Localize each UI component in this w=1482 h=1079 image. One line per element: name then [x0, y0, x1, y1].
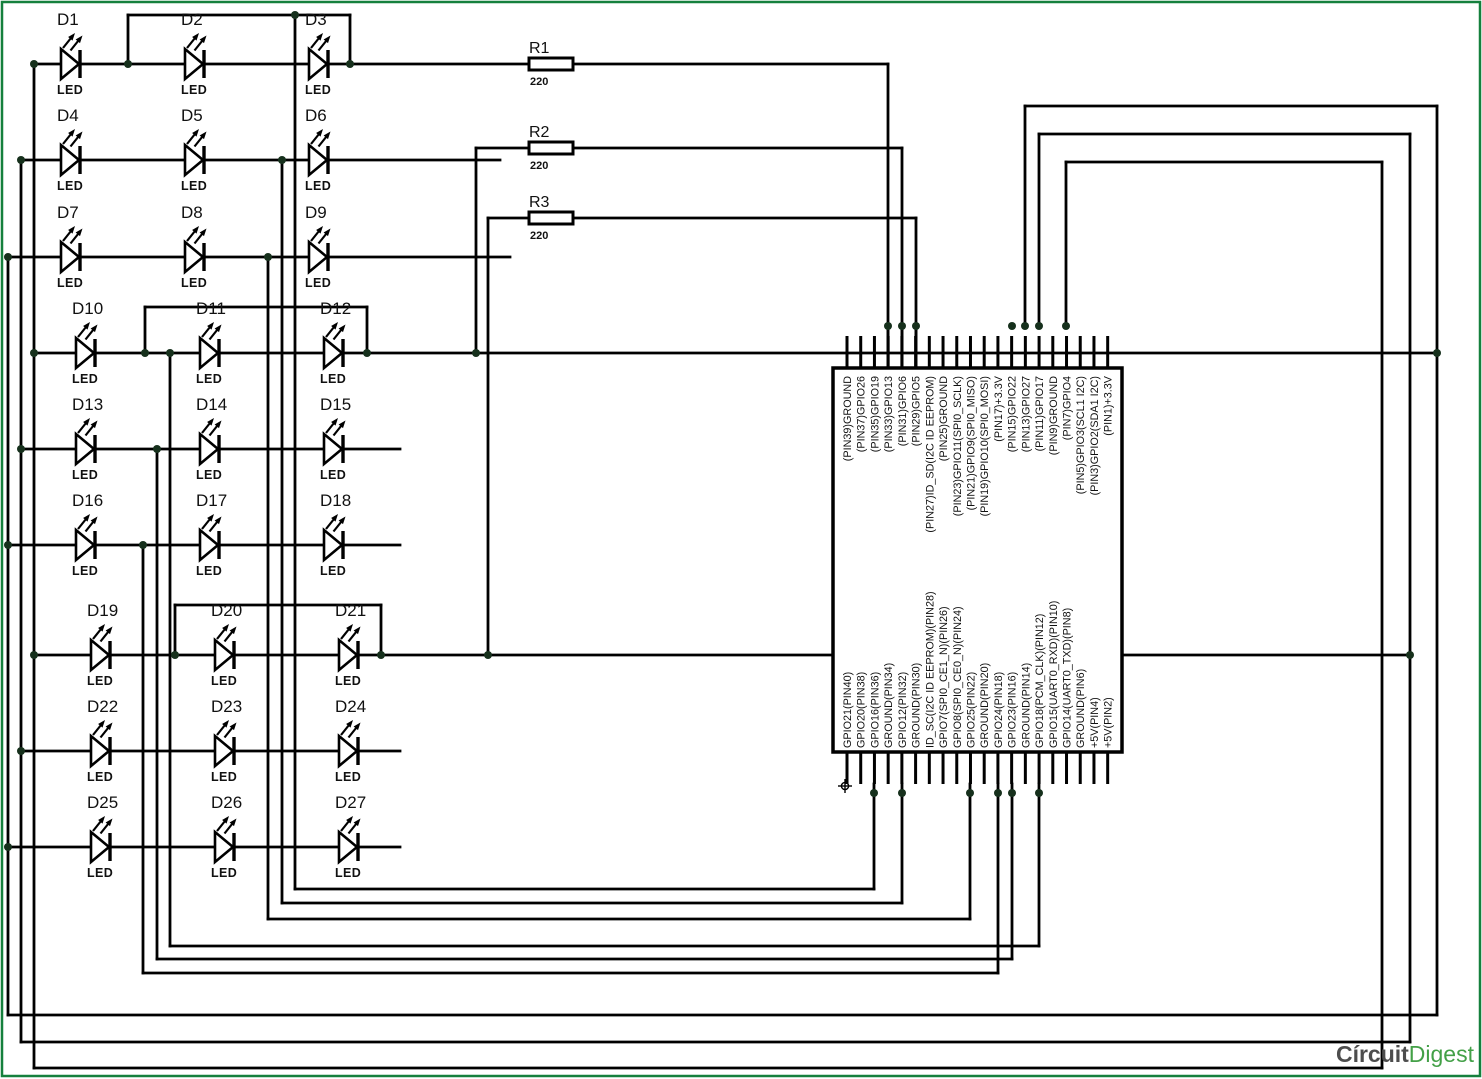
led-arrowhead-icon [222, 624, 236, 634]
pi-top-pin-label: (PIN23)GPIO11(SPI0_SCLK) [952, 376, 964, 516]
led-triangle-icon [76, 338, 94, 368]
led-designator: D20 [211, 601, 242, 620]
led-triangle-icon [324, 338, 342, 368]
junction-dot [363, 349, 371, 357]
junction-dots [4, 11, 1441, 851]
led-arrowhead-icon [68, 33, 82, 43]
led-triangle-icon [215, 832, 233, 862]
led-arrowhead-icon [192, 129, 206, 139]
led-type-label: LED [87, 674, 113, 688]
junction-dot [1008, 789, 1016, 797]
led-type-label: LED [196, 372, 222, 386]
led-triangle-icon [309, 49, 327, 79]
led-d7: D7LED [57, 203, 83, 290]
led-designator: D23 [211, 697, 242, 716]
junction-dot [1035, 322, 1043, 330]
junction-dot [141, 349, 149, 357]
pi-bottom-pin-label: GPIO24(PIN18) [993, 672, 1005, 748]
resistor-r3: R3220 [529, 194, 573, 242]
led-designator: D17 [196, 491, 227, 510]
led-type-label: LED [305, 83, 331, 97]
pi-bottom-pin-label: ID_SC(I2C ID EEPROM)(PIN28) [924, 591, 936, 748]
led-arrowhead-icon [316, 226, 330, 236]
junction-dot [4, 253, 12, 261]
led-type-label: LED [211, 866, 237, 880]
led-triangle-icon [91, 736, 109, 766]
led-triangle-icon [324, 434, 342, 464]
pi-top-pin-label: (PIN5)GPIO3(SCL1 I2C) [1075, 376, 1087, 494]
junction-dot [472, 349, 480, 357]
led-d26: D26LED [211, 793, 242, 880]
led-designator: D2 [181, 10, 203, 29]
led-array: D1LEDD2LEDD3LEDD4LEDD5LEDD6LEDD7LEDD8LED… [57, 10, 366, 880]
junction-dot [1406, 651, 1414, 659]
led-d9: D9LED [305, 203, 331, 290]
pi-bottom-pin-label: GROUND(PIN14) [1020, 663, 1032, 748]
led-arrowhead-icon [316, 129, 330, 139]
junction-dot [484, 651, 492, 659]
led-d2: D2LED [181, 10, 207, 97]
led-designator: D5 [181, 106, 203, 125]
pi-top-pin-label: (PIN33)GPIO13 [883, 376, 895, 452]
pi-top-pin-label: (PIN15)GPIO22 [1007, 376, 1019, 452]
junction-dot [994, 789, 1002, 797]
pi-top-pin-label: (PIN21)GPIO9(SPI0_MISO) [965, 376, 977, 510]
logo-circuit-text: Círcuit [1336, 1041, 1409, 1067]
pi-top-pin-label: (PIN13)GPIO27 [1020, 376, 1032, 452]
led-triangle-icon [76, 530, 94, 560]
pi-bottom-pin-label: GROUND(PIN34) [883, 663, 895, 748]
led-type-label: LED [320, 468, 346, 482]
led-arrowhead-icon [207, 322, 221, 332]
led-d10: D10LED [72, 299, 103, 386]
led-type-label: LED [211, 674, 237, 688]
led-type-label: LED [320, 564, 346, 578]
led-d11: D11LED [196, 299, 226, 386]
led-arrowhead-icon [222, 720, 236, 730]
junction-dot [291, 11, 299, 19]
resistor-name: R3 [529, 194, 550, 211]
pi-bottom-pin-label: +5V(PIN2) [1103, 697, 1115, 748]
led-arrowhead-icon [346, 816, 360, 826]
resistor-r2: R2220 [529, 124, 573, 172]
led-triangle-icon [185, 49, 203, 79]
led-triangle-icon [200, 434, 218, 464]
pi-top-pin-label: (PIN1)+3.3V [1103, 375, 1115, 436]
junction-dot [278, 156, 286, 164]
pi-top-pin-label: (PIN7)GPIO4 [1062, 376, 1074, 440]
led-designator: D26 [211, 793, 242, 812]
led-d3: D3LED [305, 10, 331, 97]
led-type-label: LED [72, 564, 98, 578]
led-d1: D1LED [57, 10, 83, 97]
led-designator: D22 [87, 697, 118, 716]
led-arrowhead-icon [83, 418, 97, 428]
junction-dot [377, 651, 385, 659]
led-d20: D20LED [211, 601, 242, 688]
resistor-body [529, 58, 573, 70]
junction-dot [17, 747, 25, 755]
pi-top-pin-label: (PIN39)GROUND [842, 376, 854, 461]
led-arrowhead-icon [192, 33, 206, 43]
pi-bottom-pin-label: GPIO7(SPI0_CE1_N)(PIN26) [938, 606, 950, 748]
led-d8: D8LED [181, 203, 207, 290]
resistor-name: R1 [529, 40, 550, 57]
led-type-label: LED [305, 276, 331, 290]
led-designator: D13 [72, 395, 103, 414]
led-type-label: LED [211, 770, 237, 784]
led-type-label: LED [335, 674, 361, 688]
led-type-label: LED [196, 564, 222, 578]
led-type-label: LED [72, 468, 98, 482]
led-triangle-icon [200, 338, 218, 368]
junction-dot [139, 541, 147, 549]
pi-top-pin-label: (PIN11)GPIO17 [1034, 376, 1046, 451]
led-arrowhead-icon [98, 816, 112, 826]
led-type-label: LED [320, 372, 346, 386]
junction-dot [30, 349, 38, 357]
pi-bottom-pin-label: GPIO25(PIN22) [965, 672, 977, 748]
resistor-value: 220 [530, 76, 548, 88]
led-d5: D5LED [181, 106, 207, 193]
led-type-label: LED [57, 276, 83, 290]
led-arrowhead-icon [192, 226, 206, 236]
pi-top-pin-label: (PIN29)GPIO5 [911, 376, 923, 446]
led-arrowhead-icon [207, 418, 221, 428]
junction-dot [1062, 322, 1070, 330]
pi-bottom-pin-label: GPIO23(PIN16) [1007, 672, 1019, 748]
pi-bottom-pin-label: GPIO8(SPI0_CE0_N)(PIN24) [952, 606, 964, 748]
led-type-label: LED [335, 770, 361, 784]
circuitdigest-logo: CírcuitDigest [1336, 1041, 1475, 1067]
led-designator: D10 [72, 299, 103, 318]
junction-dot [1433, 349, 1441, 357]
led-designator: D12 [320, 299, 351, 318]
junction-dot [1008, 322, 1016, 330]
led-designator: D9 [305, 203, 327, 222]
junction-dot [1035, 789, 1043, 797]
led-designator: D4 [57, 106, 79, 125]
led-type-label: LED [181, 179, 207, 193]
led-arrowhead-icon [346, 624, 360, 634]
led-type-label: LED [335, 866, 361, 880]
junction-dot [884, 322, 892, 330]
led-designator: D15 [320, 395, 351, 414]
junction-dot [870, 789, 878, 797]
led-designator: D24 [335, 697, 366, 716]
circuit-schematic-page: D1LEDD2LEDD3LEDD4LEDD5LEDD6LEDD7LEDD8LED… [0, 0, 1482, 1079]
junction-dot [966, 789, 974, 797]
led-arrowhead-icon [346, 720, 360, 730]
resistor-body [529, 212, 573, 224]
junction-dot [4, 541, 12, 549]
junction-dot [264, 253, 272, 261]
junction-dot [17, 445, 25, 453]
pi-bottom-pin-label: GPIO15(UART0_RXD)(PIN10) [1048, 601, 1060, 748]
led-arrowhead-icon [222, 816, 236, 826]
led-triangle-icon [309, 145, 327, 175]
led-arrowhead-icon [98, 720, 112, 730]
led-triangle-icon [76, 434, 94, 464]
led-type-label: LED [87, 770, 113, 784]
pi-bottom-pin-label: GPIO16(PIN36) [869, 672, 881, 748]
junction-dot [17, 156, 25, 164]
led-designator: D18 [320, 491, 351, 510]
pi-bottom-pin-label: GPIO12(PIN32) [897, 672, 909, 748]
junction-dot [124, 60, 132, 68]
pi-bottom-pin-label: GPIO20(PIN38) [856, 672, 868, 748]
led-designator: D21 [335, 601, 366, 620]
led-designator: D1 [57, 10, 79, 29]
led-triangle-icon [309, 242, 327, 272]
led-designator: D14 [196, 395, 227, 414]
junction-dot [898, 322, 906, 330]
led-d25: D25LED [87, 793, 118, 880]
logo-digest-text: Digest [1409, 1041, 1475, 1067]
led-d16: D16LED [72, 491, 103, 578]
led-arrowhead-icon [83, 514, 97, 524]
crosshair-icon [838, 779, 852, 793]
led-triangle-icon [185, 145, 203, 175]
pi-top-pin-label: (PIN19)GPIO10(SPI0_MOSI) [979, 376, 991, 516]
led-d4: D4LED [57, 106, 83, 193]
circuit-schematic: D1LEDD2LEDD3LEDD4LEDD5LEDD6LEDD7LEDD8LED… [0, 0, 1482, 1079]
led-arrowhead-icon [98, 624, 112, 634]
led-arrowhead-icon [331, 514, 345, 524]
led-d22: D22LED [87, 697, 118, 784]
led-d27: D27LED [335, 793, 366, 880]
junction-dot [166, 349, 174, 357]
led-triangle-icon [324, 530, 342, 560]
led-d14: D14LED [196, 395, 227, 482]
junction-dot [30, 60, 38, 68]
led-d12: D12LED [320, 299, 351, 386]
junction-dot [153, 445, 161, 453]
led-triangle-icon [61, 145, 79, 175]
wires [8, 15, 1437, 1068]
led-d24: D24LED [335, 697, 366, 784]
led-triangle-icon [215, 640, 233, 670]
led-designator: D7 [57, 203, 79, 222]
led-triangle-icon [339, 736, 357, 766]
junction-dot [4, 843, 12, 851]
led-type-label: LED [57, 83, 83, 97]
pi-bottom-pin-label: +5V(PIN4) [1089, 697, 1101, 748]
led-d23: D23LED [211, 697, 242, 784]
led-arrowhead-icon [331, 418, 345, 428]
led-type-label: LED [87, 866, 113, 880]
junction-dot [346, 60, 354, 68]
led-triangle-icon [200, 530, 218, 560]
led-triangle-icon [61, 49, 79, 79]
pi-bottom-pin-label: GROUND(PIN30) [911, 663, 923, 748]
led-type-label: LED [196, 468, 222, 482]
led-triangle-icon [185, 242, 203, 272]
resistors: R1220R2220R3220 [529, 40, 573, 242]
led-designator: D8 [181, 203, 203, 222]
raspberry-pi-header: (PIN39)GROUNDGPIO21(PIN40)(PIN37)GPIO26G… [833, 336, 1122, 793]
led-arrowhead-icon [331, 322, 345, 332]
led-triangle-icon [91, 640, 109, 670]
pi-top-pin-label: (PIN17)+3.3V [993, 375, 1005, 442]
led-designator: D27 [335, 793, 366, 812]
resistor-value: 220 [530, 230, 548, 242]
pi-bottom-pin-label: GROUND(PIN6) [1075, 669, 1087, 748]
pi-top-pin-label: (PIN9)GROUND [1048, 376, 1060, 455]
resistor-value: 220 [530, 160, 548, 172]
resistor-body [529, 142, 573, 154]
junction-dot [171, 651, 179, 659]
pi-top-pin-label: (PIN25)GROUND [938, 376, 950, 461]
pi-top-pin-label: (PIN3)GPIO2(SDA1 I2C) [1089, 376, 1101, 495]
led-designator: D25 [87, 793, 118, 812]
resistor-r1: R1220 [529, 40, 573, 88]
led-designator: D6 [305, 106, 327, 125]
junction-dot [898, 789, 906, 797]
pi-top-pin-label: (PIN35)GPIO19 [869, 376, 881, 452]
led-d19: D19LED [87, 601, 118, 688]
led-type-label: LED [57, 179, 83, 193]
led-arrowhead-icon [68, 226, 82, 236]
led-arrowhead-icon [83, 322, 97, 332]
led-triangle-icon [91, 832, 109, 862]
led-d21: D21LED [335, 601, 366, 688]
resistor-name: R2 [529, 124, 550, 141]
junction-dot [1021, 322, 1029, 330]
pi-top-pin-label: (PIN27)ID_SD(I2C ID EEPROM) [924, 376, 936, 533]
led-d17: D17LED [196, 491, 227, 578]
led-d18: D18LED [320, 491, 351, 578]
led-type-label: LED [72, 372, 98, 386]
led-type-label: LED [305, 179, 331, 193]
junction-dot [30, 651, 38, 659]
led-designator: D11 [196, 299, 226, 318]
led-triangle-icon [61, 242, 79, 272]
pi-top-pin-label: (PIN37)GPIO26 [856, 376, 868, 452]
led-triangle-icon [339, 832, 357, 862]
led-designator: D3 [305, 10, 327, 29]
led-designator: D19 [87, 601, 118, 620]
watermark-logo: CírcuitDigest [1336, 1041, 1475, 1067]
pi-bottom-pin-label: GPIO18(PCM_CLK)(PIN12) [1034, 614, 1046, 748]
led-arrowhead-icon [316, 33, 330, 43]
pi-top-pin-label: (PIN31)GPIO6 [897, 376, 909, 446]
led-d13: D13LED [72, 395, 103, 482]
led-arrowhead-icon [68, 129, 82, 139]
pi-bottom-pin-label: GROUND(PIN20) [979, 663, 991, 748]
led-type-label: LED [181, 83, 207, 97]
led-triangle-icon [215, 736, 233, 766]
led-designator: D16 [72, 491, 103, 510]
led-type-label: LED [181, 276, 207, 290]
led-d15: D15LED [320, 395, 351, 482]
pi-bottom-pin-label: GPIO21(PIN40) [842, 672, 854, 748]
led-triangle-icon [339, 640, 357, 670]
pi-bottom-pin-label: GPIO14(UART0_TXD)(PIN8) [1062, 608, 1074, 748]
led-d6: D6LED [305, 106, 331, 193]
led-arrowhead-icon [207, 514, 221, 524]
junction-dot [912, 322, 920, 330]
